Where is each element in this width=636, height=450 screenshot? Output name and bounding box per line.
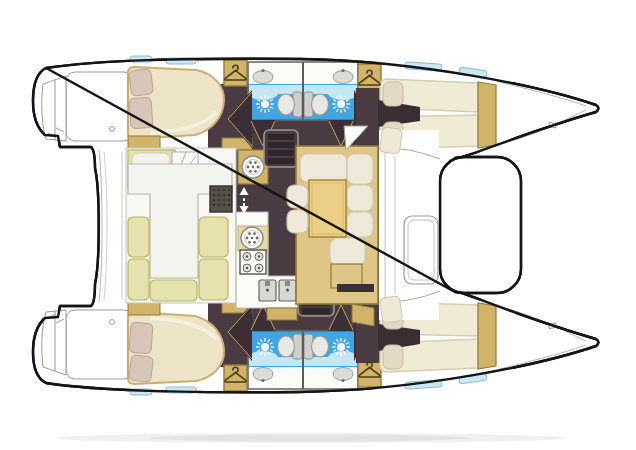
shower-floor-light bbox=[248, 86, 278, 100]
lounge-fiddle bbox=[337, 284, 374, 292]
four-burner-stove-icon bbox=[240, 250, 266, 274]
stool bbox=[287, 210, 308, 233]
washbasin-icon bbox=[253, 71, 273, 84]
foredeck-locker-frame bbox=[440, 157, 521, 293]
toilet-icon bbox=[278, 92, 303, 117]
saloon-trim-gold bbox=[267, 308, 297, 320]
wardrobe bbox=[358, 64, 381, 92]
boat-shadow-core bbox=[150, 435, 470, 442]
foredeck bbox=[379, 127, 440, 324]
cockpit-dinette bbox=[126, 148, 236, 303]
floor-plan-canvas bbox=[0, 0, 636, 450]
transom-starboard-steps bbox=[42, 310, 133, 379]
toilet-icon bbox=[304, 92, 329, 117]
catamaran-floor-plan bbox=[0, 0, 636, 450]
wardrobe bbox=[224, 60, 247, 86]
saloon-trim-gold bbox=[352, 304, 374, 326]
hull-bathrooms bbox=[248, 62, 358, 120]
deck-pad bbox=[379, 296, 402, 324]
pillow bbox=[383, 82, 403, 106]
deck-pad bbox=[379, 127, 402, 155]
shower-floor-light bbox=[328, 86, 358, 100]
companionway-steps-port bbox=[264, 130, 298, 167]
forward-bulkhead-gold bbox=[478, 82, 496, 148]
pillow bbox=[129, 69, 154, 96]
washbasin-icon bbox=[333, 71, 353, 84]
vent-grate-icon bbox=[210, 186, 232, 212]
faucet bbox=[261, 69, 264, 72]
transom-port-steps bbox=[42, 72, 133, 141]
faucet bbox=[341, 69, 344, 72]
